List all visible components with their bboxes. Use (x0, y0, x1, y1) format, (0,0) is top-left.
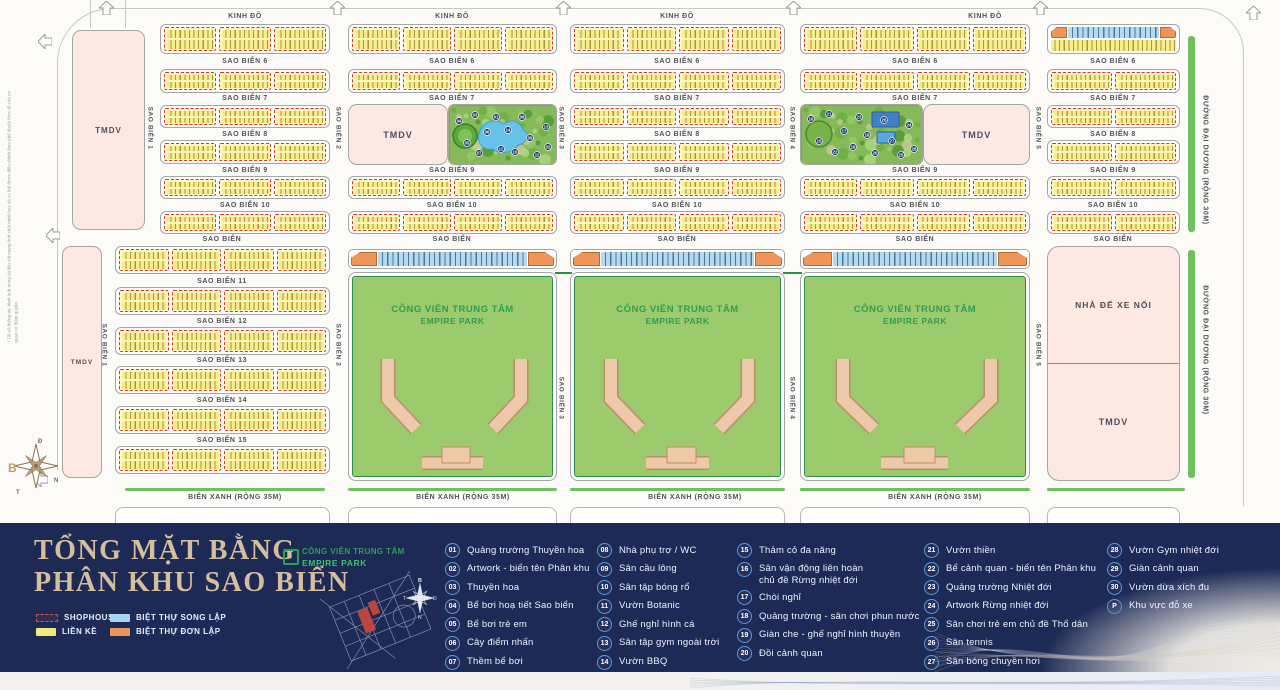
shophouse-group (219, 108, 271, 125)
street-green-strip (800, 488, 1030, 491)
road-label: KINH ĐÔ (968, 13, 1002, 20)
svg-text:Đ: Đ (433, 596, 437, 602)
shophouse-group (1051, 108, 1112, 125)
park-boundary-connector (555, 272, 572, 274)
shophouse-group (454, 72, 502, 90)
cropped-block (570, 507, 785, 523)
shophouse-group (679, 27, 729, 51)
shophouse-group (164, 72, 216, 90)
park-label-line1: CÔNG VIÊN TRUNG TÂM (616, 304, 738, 315)
shophouse-group (352, 27, 400, 51)
cropped-block (1047, 507, 1180, 523)
shophouse-group (352, 72, 400, 90)
tmdv-block: TMDV (72, 30, 145, 230)
shophouse-group (119, 290, 169, 312)
legend-item-number: 20 (737, 646, 752, 661)
housing-row (800, 69, 1030, 93)
shophouse-group (860, 214, 913, 231)
street-green-strip (570, 488, 785, 491)
shophouse-group (274, 27, 326, 51)
legend-item: 18 Quảng trường - sân chơi phun nước (737, 609, 922, 624)
shophouse-group (403, 179, 451, 196)
road-exit-arrow-icon (786, 1, 801, 20)
road-label: BIỂN XANH (RỘNG 35M) (888, 494, 982, 501)
shophouse-group (219, 179, 271, 196)
housing-row (115, 406, 330, 434)
shophouse-group (804, 72, 857, 90)
legend-item: 17 Chòi nghỉ (737, 590, 922, 605)
svg-text:15: 15 (817, 139, 822, 144)
svg-text:N: N (54, 478, 58, 484)
shophouse-group (224, 290, 274, 312)
road-label: KINH ĐÔ (660, 13, 694, 20)
legend-item-label: Sân chơi trẻ em chủ đề Thổ dân (946, 617, 1088, 630)
shophouse-group (164, 214, 216, 231)
legend-item-label: Artwork - biển tên Phân khu (467, 562, 590, 575)
legend-item-number: 21 (924, 543, 939, 558)
road-label: SAO BIỂN 6 (1090, 58, 1136, 65)
shophouse-group (119, 330, 169, 352)
tmdv-label: TMDV (962, 130, 992, 140)
amenity-park-west: 0405030706011214100809111302 (448, 104, 557, 165)
empire-park-legend-line2: EMPIRE PARK (302, 558, 367, 568)
legend-item-label: Thuyền hoa (467, 580, 519, 593)
legend-item: 28 Vườn Gym nhiệt đới (1107, 543, 1280, 558)
shophouse-group (224, 330, 274, 352)
housing-row (1047, 105, 1180, 128)
svg-text:21: 21 (827, 112, 832, 117)
housing-row (348, 211, 557, 234)
road-label-vertical: SAO BIỂN 3 (558, 107, 565, 150)
legend-songlap: BIỆT THỰ SONG LẬP (110, 613, 226, 622)
svg-text:22: 22 (833, 150, 838, 155)
boundary-top (145, 8, 1180, 9)
don-lap-villa (1160, 27, 1176, 38)
housing-row (570, 69, 785, 93)
road-label: SAO BIỂN 9 (654, 167, 700, 174)
lienke-swatch (36, 628, 56, 636)
shophouse-group (172, 249, 222, 271)
legend-item: 19 Giàn che - ghế nghỉ hình thuyền (737, 628, 922, 643)
don-lap-villa (1051, 27, 1067, 38)
strip-wave-decoration (690, 672, 1280, 690)
shophouse-group (172, 409, 222, 431)
don-lap-villa (803, 252, 832, 266)
shophouse-group (679, 143, 729, 161)
road-label: SAO BIỂN 10 (890, 202, 940, 209)
svg-text:11: 11 (535, 153, 540, 158)
svg-text:N: N (418, 615, 422, 621)
housing-row (115, 327, 330, 355)
housing-row (348, 24, 557, 54)
park-label-line2: EMPIRE PARK (646, 316, 710, 326)
shophouse-group (917, 214, 970, 231)
shophouse-group (164, 179, 216, 196)
road-label: SAO BIỂN (658, 236, 697, 243)
amenity-park-east: 1615212217192318202627252428 (800, 104, 923, 165)
legend-item-label: Khu vực đỗ xe (1129, 599, 1193, 612)
shophouse-group (627, 108, 677, 125)
shophouse-group (119, 249, 169, 271)
road-label-vertical: SAO BIỂN 2 (335, 324, 342, 367)
shophouse-group (732, 27, 782, 51)
shophouse-group (274, 143, 326, 161)
housing-row (1047, 211, 1180, 234)
road-exit-arrow-icon (330, 1, 345, 20)
shophouse-group (679, 108, 729, 125)
road-label: SAO BIỂN 10 (652, 202, 702, 209)
shophouse-group (505, 27, 553, 51)
plan-title-line2: PHÂN KHU SAO BIỂN (34, 567, 350, 599)
svg-text:03: 03 (473, 113, 478, 118)
shophouse-group (1115, 179, 1176, 196)
road-label: SAO BIỂN 7 (429, 95, 475, 102)
legend-item-label: Giàn che - ghế nghỉ hình thuyền (759, 628, 900, 641)
svg-text:28: 28 (912, 147, 917, 152)
tmdv-label: TMDV (71, 359, 93, 366)
legend-item-number: 10 (597, 580, 612, 595)
road-label: SAO BIỂN 6 (654, 58, 700, 65)
shophouse-group (1051, 72, 1112, 90)
legend-item-number: 16 (737, 562, 752, 577)
shophouse-group (1115, 72, 1176, 90)
housing-row (160, 176, 330, 199)
svg-text:16: 16 (809, 117, 814, 122)
road-label-vertical: SAO BIỂN 5 (1035, 324, 1042, 367)
shophouse-group (574, 72, 624, 90)
legend-item-number: 13 (597, 636, 612, 651)
shophouse-group (224, 409, 274, 431)
legend-items-col-3: 15 Thảm cỏ đa năng 16 Sân vận động liên … (737, 543, 922, 665)
shophouse-group (574, 143, 624, 161)
road-label: SAO BIỂN 8 (654, 131, 700, 138)
legend-item-label: Quảng trường Nhiệt đới (946, 580, 1052, 593)
svg-text:B: B (418, 578, 422, 584)
shophouse-group (219, 214, 271, 231)
legend-item-number: 07 (445, 655, 460, 670)
road-label: SAO BIỂN 9 (892, 167, 938, 174)
shophouse-group (119, 409, 169, 431)
legend-item-label: Vườn thiền (946, 543, 995, 556)
shophouse-group (277, 369, 327, 391)
legend-item-label: Sân tennis (946, 636, 993, 649)
shophouse-group (274, 108, 326, 125)
legend-item: 29 Giàn cảnh quan (1107, 562, 1280, 577)
svg-text:07: 07 (477, 151, 482, 156)
road-label: SAO BIỂN 10 (1088, 202, 1138, 209)
tmdv-label: TMDV (95, 126, 122, 135)
songlap-label: BIỆT THỰ SONG LẬP (136, 613, 226, 622)
boundary-right (1243, 56, 1244, 506)
svg-text:23: 23 (857, 115, 862, 120)
legend-item: 25 Sân chơi trẻ em chủ đề Thổ dân (924, 617, 1109, 632)
shophouse-group (627, 143, 677, 161)
shophouse-group (804, 27, 857, 51)
plan-title-line1: TỔNG MẶT BẰNG (34, 535, 296, 567)
park-label-line2: EMPIRE PARK (421, 316, 485, 326)
legend-item: 27 Sân bóng chuyền hơi (924, 655, 1109, 670)
road-label: SAO BIỂN 7 (892, 95, 938, 102)
legend-item-number: 26 (924, 636, 939, 651)
shophouse-group (164, 143, 216, 161)
shophouse-group (574, 108, 624, 125)
shophouse-group (164, 108, 216, 125)
legend-item-label: Bể cảnh quan - biển tên Phân khu (946, 562, 1096, 575)
svg-text:B: B (8, 461, 17, 475)
svg-text:19: 19 (851, 145, 856, 150)
housing-row (160, 24, 330, 54)
legend-item-number: 11 (597, 599, 612, 614)
shophouse-group (454, 214, 502, 231)
shophouse-group (574, 27, 624, 51)
boulevard-green-strip (1188, 36, 1195, 232)
legend-item-number: 15 (737, 543, 752, 558)
legend-item-number: 02 (445, 562, 460, 577)
parking-tmdv-block: NHÀ ĐỂ XE NỔI TMDV (1047, 246, 1180, 481)
boulevard-label: ĐƯỜNG ĐẠI DƯƠNG (RỘNG 30M) (1202, 95, 1209, 224)
shophouse-group (224, 369, 274, 391)
legend-item-number: 01 (445, 543, 460, 558)
shophouse-group (732, 108, 782, 125)
shophouse-group (732, 143, 782, 161)
shophouse-group (574, 179, 624, 196)
shophouse-group (274, 179, 326, 196)
shophouse-group (119, 449, 169, 471)
road-label-vertical: SAO BIỂN 4 (789, 377, 796, 420)
legend-item-label: Chòi nghỉ (759, 590, 801, 603)
housing-row (570, 24, 785, 54)
svg-text:17: 17 (842, 129, 847, 134)
road-label: KINH ĐÔ (228, 13, 262, 20)
shophouse-group (403, 72, 451, 90)
legend-item: 16 Sân vận động liên hoàn chủ đề Rừng nh… (737, 562, 922, 587)
legend-item-label: Nhà phụ trợ / WC (619, 543, 697, 556)
don-lap-villa (351, 252, 377, 266)
road-exit-arrow-icon (46, 228, 65, 243)
shophouse-group (172, 290, 222, 312)
legend-item-label: Vườn BBQ (619, 655, 668, 668)
legend-item-number: 12 (597, 617, 612, 632)
housing-row (1047, 140, 1180, 164)
shophouse-group (219, 72, 271, 90)
villa-strip (800, 249, 1030, 269)
legend-item-number: 27 (924, 655, 939, 670)
svg-text:20: 20 (873, 151, 878, 156)
svg-text:01: 01 (494, 115, 499, 120)
shophouse-group (679, 214, 729, 231)
legend-item-number: 23 (924, 580, 939, 595)
song-lap-villas (833, 252, 997, 266)
boundary-left (57, 62, 58, 470)
legend-item-label: Bể bơi hoạ tiết Sao biển (467, 599, 574, 612)
svg-text:24: 24 (907, 123, 912, 128)
masterplan-poster: CÔNG VIÊN TRUNG TÂMEMPIRE PARK CÔNG VIÊN… (0, 0, 1280, 690)
shophouse-group (917, 179, 970, 196)
housing-row (115, 246, 330, 274)
svg-text:09: 09 (528, 136, 533, 141)
villa-row (1047, 24, 1180, 54)
park-label-line1: CÔNG VIÊN TRUNG TÂM (391, 304, 513, 315)
boulevard-label: ĐƯỜNG ĐẠI DƯƠNG (RỘNG 30M) (1202, 285, 1209, 414)
shophouse-group (1115, 214, 1176, 231)
shophouse-group (274, 72, 326, 90)
road-label: SAO BIỂN 6 (429, 58, 475, 65)
legend-item-label: Vườn Gym nhiệt đới (1129, 543, 1219, 556)
shophouse-group (627, 72, 677, 90)
road-label: SAO BIỂN 6 (892, 58, 938, 65)
road-exit-arrow-icon (1033, 1, 1048, 20)
shophouse-group (973, 27, 1026, 51)
villa-strip (570, 249, 785, 269)
housing-row (160, 211, 330, 234)
legend-item: 26 Sân tennis (924, 636, 1109, 651)
shophouse-group (679, 179, 729, 196)
shophouse-group (454, 179, 502, 196)
legend-item-number: 18 (737, 609, 752, 624)
road-label: KINH ĐÔ (435, 13, 469, 20)
road-label-vertical: SAO BIỂN 3 (558, 377, 565, 420)
road-exit-arrow-icon (99, 1, 114, 20)
road-label: SAO BIỂN 7 (654, 95, 700, 102)
legend-item-number: 22 (924, 562, 939, 577)
housing-row (570, 140, 785, 164)
legend-item: 22 Bể cảnh quan - biển tên Phân khu (924, 562, 1109, 577)
shophouse-group (119, 369, 169, 391)
svg-text:T: T (16, 490, 20, 496)
housing-row (1047, 176, 1180, 199)
shophouse-group (224, 249, 274, 271)
park-label-line1: CÔNG VIÊN TRUNG TÂM (854, 304, 976, 315)
svg-text:25: 25 (899, 153, 904, 158)
cropped-block (800, 507, 1030, 523)
legend-item-label: Giàn cảnh quan (1129, 562, 1199, 575)
housing-row (1047, 69, 1180, 93)
svg-text:27: 27 (890, 139, 895, 144)
legend-item-label: Bể bơi trẻ em (467, 617, 527, 630)
svg-text:05: 05 (465, 141, 470, 146)
legend-shophouse: SHOPHOUSE (36, 613, 120, 622)
street-green-strip (125, 488, 325, 491)
shophouse-group (1115, 108, 1176, 125)
legend-item-label: Sân vận động liên hoàn chủ đề Rừng nhiệt… (759, 562, 863, 587)
road-label: SAO BIỂN (1094, 236, 1133, 243)
road-label-vertical: SAO BIỂN 4 (789, 107, 796, 150)
park-label-line2: EMPIRE PARK (883, 316, 947, 326)
legend-item-number: 28 (1107, 543, 1122, 558)
legend-item-label: Vườn dừa xích đu (1129, 580, 1209, 593)
legend-item: 23 Quảng trường Nhiệt đới (924, 580, 1109, 595)
road-label: SAO BIỂN (896, 236, 935, 243)
shophouse-group (164, 27, 216, 51)
road-label: SAO BIỂN 11 (197, 278, 247, 285)
legend-item-label: Cây điểm nhấn (467, 636, 534, 649)
legend-item-label: Ghế nghỉ hình cá (619, 617, 695, 630)
road-label: SAO BIỂN 9 (1090, 167, 1136, 174)
legend-band: TỔNG MẶT BẰNG PHÂN KHU SAO BIỂN SHOPHOUS… (0, 523, 1280, 672)
shophouse-group (917, 72, 970, 90)
shophouse-group (732, 179, 782, 196)
svg-text:14: 14 (506, 128, 511, 133)
road-label: SAO BIỂN 10 (427, 202, 477, 209)
shophouse-group (732, 72, 782, 90)
shophouse-group (277, 449, 327, 471)
shophouse-group (277, 290, 327, 312)
svg-text:04: 04 (457, 119, 462, 124)
road-label: SAO BIỂN 10 (220, 202, 270, 209)
road-label: SAO BIỂN 12 (197, 318, 247, 325)
shophouse-group (627, 214, 677, 231)
shophouse-group (732, 214, 782, 231)
don-lap-villa (998, 252, 1027, 266)
bottom-strip (0, 672, 1280, 690)
shophouse-group (505, 179, 553, 196)
housing-row (348, 69, 557, 93)
cropped-block (348, 507, 557, 523)
road-label: BIỂN XANH (RỘNG 35M) (648, 494, 742, 501)
legend-item-number: 29 (1107, 562, 1122, 577)
shophouse-group (274, 214, 326, 231)
shophouse-group (973, 179, 1026, 196)
shophouse-group (1051, 143, 1112, 161)
shophouse-group (505, 214, 553, 231)
road-label: SAO BIỂN (433, 236, 472, 243)
cropped-block (115, 507, 330, 523)
legend-items-col-5: 28 Vườn Gym nhiệt đới 29 Giàn cảnh quan … (1107, 543, 1280, 617)
song-lap-villas (1068, 27, 1159, 38)
lienke-label: LIỀN KỀ (62, 627, 97, 636)
shophouse-group (224, 449, 274, 471)
shophouse-group (172, 449, 222, 471)
compass-icon: Đ B N T (8, 436, 64, 496)
villa-strip (348, 249, 557, 269)
don-lap-villa (573, 252, 600, 266)
road-label: BIỂN XANH (RỘNG 35M) (188, 494, 282, 501)
shophouse-group (403, 27, 451, 51)
shophouse-group (574, 214, 624, 231)
svg-text:08: 08 (520, 115, 525, 120)
svg-text:Đ: Đ (38, 439, 43, 445)
legend-item-number: 19 (737, 628, 752, 643)
legend-item-number: 14 (597, 655, 612, 670)
housing-row (160, 105, 330, 128)
road-label: BIỂN XANH (RỘNG 35M) (416, 494, 510, 501)
don-lap-villa (528, 252, 554, 266)
housing-row (160, 140, 330, 164)
road-exit-arrow-icon (1246, 6, 1261, 25)
tmdv-label: TMDV (1099, 417, 1129, 427)
shophouse-group (917, 27, 970, 51)
shophouse-group (860, 27, 913, 51)
shophouse-group (973, 72, 1026, 90)
housing-row (160, 69, 330, 93)
lien-ke-houses (1051, 40, 1176, 51)
legend-item-label: Đồi cảnh quan (759, 646, 823, 659)
road-label: SAO BIỂN 7 (1090, 95, 1136, 102)
legend-item: 30 Vườn dừa xích đu (1107, 580, 1280, 595)
svg-text:02: 02 (546, 145, 551, 150)
housing-row (348, 176, 557, 199)
road-label-vertical: SAO BIỂN 1 (147, 107, 154, 150)
legend-items-col-4: 21 Vườn thiền 22 Bể cảnh quan - biển tên… (924, 543, 1109, 672)
svg-text:T: T (403, 596, 406, 602)
shophouse-group (172, 369, 222, 391)
road-label: SAO BIỂN 6 (222, 58, 268, 65)
legend-item-label: Sân cầu lông (619, 562, 677, 575)
parking-label: NHÀ ĐỂ XE NỔI (1075, 300, 1152, 310)
shophouse-group (973, 214, 1026, 231)
housing-row (800, 176, 1030, 199)
song-lap-villas (378, 252, 526, 266)
